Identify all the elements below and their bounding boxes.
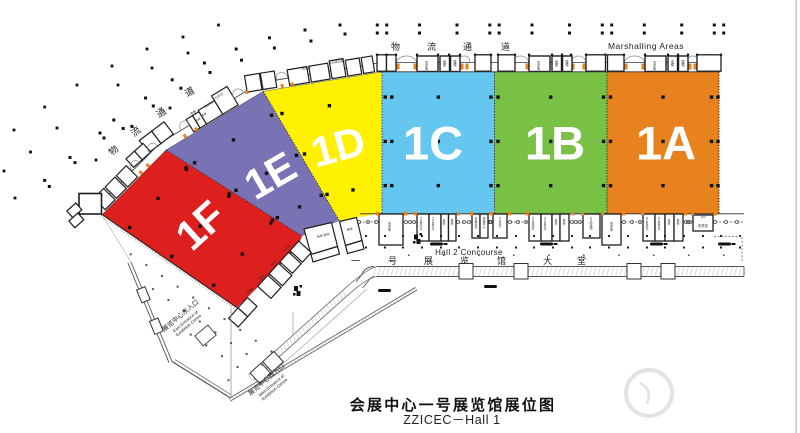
svg-text:号: 号 xyxy=(388,256,397,266)
svg-text:会展中心一号展览馆展位图: 会展中心一号展览馆展位图 xyxy=(350,396,556,414)
svg-text:1B: 1B xyxy=(525,117,585,170)
svg-text:103会议室: 103会议室 xyxy=(657,217,661,231)
svg-text:109商务: 109商务 xyxy=(498,217,502,228)
svg-text:楼梯: 楼梯 xyxy=(680,59,684,67)
svg-text:Hall 2 Concourse: Hall 2 Concourse xyxy=(435,248,503,257)
svg-text:堂: 堂 xyxy=(577,255,586,266)
svg-text:流: 流 xyxy=(427,41,436,52)
svg-text:物: 物 xyxy=(391,41,400,52)
svg-text:道: 道 xyxy=(501,41,510,52)
svg-text:1C: 1C xyxy=(403,117,463,170)
svg-text:楼梯: 楼梯 xyxy=(676,218,680,225)
svg-text:通: 通 xyxy=(463,42,472,52)
svg-text:ZZICEC－Hall 1: ZZICEC－Hall 1 xyxy=(403,413,500,427)
svg-text:111会议室: 111会议室 xyxy=(419,217,423,230)
svg-text:107会议室: 107会议室 xyxy=(543,217,547,231)
svg-text:县搪商贸: 县搪商贸 xyxy=(474,216,478,228)
svg-text:洗手间: 洗手间 xyxy=(652,60,656,71)
svg-text:楼梯: 楼梯 xyxy=(562,218,566,225)
svg-text:洗手间: 洗手间 xyxy=(424,60,428,71)
svg-text:一: 一 xyxy=(351,256,360,266)
svg-text:电梯: 电梯 xyxy=(667,218,671,225)
svg-text:大: 大 xyxy=(543,255,552,266)
svg-text:馆: 馆 xyxy=(497,255,506,266)
svg-text:洗手间: 洗手间 xyxy=(536,60,540,71)
svg-text:展: 展 xyxy=(424,256,433,266)
svg-text:楼梯: 楼梯 xyxy=(450,218,454,225)
svg-text:102: 102 xyxy=(700,215,705,219)
svg-text:电梯: 电梯 xyxy=(670,59,674,67)
svg-text:电梯: 电梯 xyxy=(554,59,558,67)
svg-text:Marshalling Areas: Marshalling Areas xyxy=(608,41,684,51)
svg-text:1A: 1A xyxy=(636,117,696,170)
svg-text:电梯: 电梯 xyxy=(554,218,558,225)
svg-text:洗手间: 洗手间 xyxy=(609,221,613,232)
svg-text:贵宾室: 贵宾室 xyxy=(698,223,709,228)
svg-text:112会议室: 112会议室 xyxy=(431,217,435,231)
svg-text:楼梯: 楼梯 xyxy=(452,59,456,67)
svg-text:108会议室: 108会议室 xyxy=(531,217,535,231)
svg-text:电梯: 电梯 xyxy=(442,59,446,67)
svg-text:洗手间: 洗手间 xyxy=(387,221,391,232)
svg-text:楼梯: 楼梯 xyxy=(564,59,568,67)
svg-text:展销中心: 展销中心 xyxy=(482,216,486,228)
svg-text:104会议室: 104会议室 xyxy=(645,217,649,231)
svg-text:106咖啡吧: 106咖啡吧 xyxy=(589,217,593,231)
svg-text:电梯: 电梯 xyxy=(442,218,446,225)
